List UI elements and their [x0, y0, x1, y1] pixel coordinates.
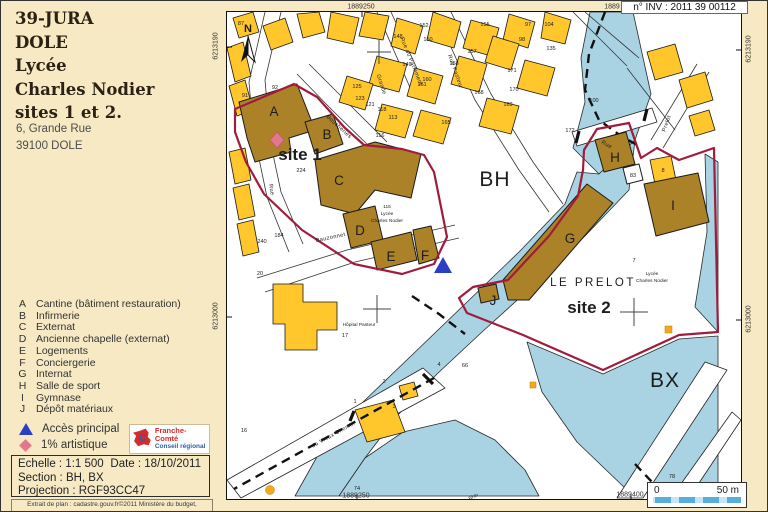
map-label-north: N [244, 23, 252, 35]
grid-coordinate: 1889400 [616, 492, 643, 499]
map-label-bldg: C [334, 173, 344, 188]
map-label-parcel: 168 [474, 90, 483, 96]
map-label-zone: BH [479, 168, 510, 191]
scale-bar: 0 50 m [647, 482, 747, 508]
legend-artistic-row: 1% artistique [19, 437, 119, 453]
legend-access-row: Accès principal [19, 421, 119, 437]
map-label-bldg: A [269, 104, 278, 119]
map-label-parcel: 104 [544, 22, 553, 28]
legend-item: ACantine (bâtiment restauration) [16, 299, 216, 311]
map-label-parcel: 150 [423, 37, 432, 43]
cadastral-plan-page: 39-JURA DOLE Lycée Charles Nodier sites … [0, 0, 768, 512]
map-label-parcel: 7 [632, 258, 635, 264]
date-value: Date : 18/10/2011 [110, 458, 201, 472]
map-label-parcel: 4 [437, 362, 440, 368]
map-label-parcel: 91 [242, 93, 248, 99]
map-label-parcel: 172 [565, 128, 574, 134]
map-label-parcel: 165 [441, 120, 450, 126]
map-label-site: site 1 [278, 145, 321, 164]
projection-value: Projection : RGF93CC47 [18, 485, 203, 499]
map-label-parcel: 3 [392, 404, 395, 410]
address-line: 6, Grande Rue [16, 121, 91, 138]
map-label-small: 115 [383, 204, 391, 210]
access-triangle-icon [19, 423, 33, 435]
map-label-parcel: 16 [241, 428, 247, 434]
map-label-parcel: 135 [546, 46, 555, 52]
map-label-bldg: E [386, 249, 395, 264]
map-label-parcel: 240 [257, 239, 266, 245]
title-line: DOLE [15, 31, 220, 55]
grid-coordinate: 6213000 [746, 305, 753, 332]
plan-title: 39-JURA DOLE Lycée Charles Nodier sites … [15, 7, 220, 125]
artistic-label: 1% artistique [41, 439, 107, 451]
map-label-bldg: J [490, 293, 497, 308]
map-label-bldg: F [421, 248, 429, 263]
grid-coordinate: 6213000 [213, 302, 220, 329]
map-label-parcel: 97 [525, 22, 531, 28]
grid-coordinate: 1889250 [342, 493, 369, 500]
map-label-zone: BX [650, 369, 680, 392]
map-label-prelot: LE PRELOT [550, 277, 636, 289]
map-label-parcel: 113 [389, 115, 398, 121]
map-label-parcel: 169 [503, 102, 512, 108]
map-label-parcel: 152 [419, 23, 428, 29]
symbol-legend: Accès principal 1% artistique [19, 421, 119, 453]
inventory-number: n° INV : 2011 39 00112 [621, 1, 748, 14]
map-label-small: Charles Nodier [636, 278, 668, 284]
map-label-parcel: 171 [507, 68, 516, 74]
map-label-parcel: 184 [274, 233, 283, 239]
grid-coordinate: 6213190 [213, 32, 220, 59]
grid-coordinate: 6213190 [746, 35, 753, 62]
map-label-parcel: 116 [376, 133, 385, 139]
map-label-parcel: 123 [355, 96, 364, 102]
map-label-parcel: 8 [661, 168, 664, 174]
title-line: Charles Nodier [15, 78, 220, 102]
map-label-parcel: 121 [365, 102, 374, 108]
scale-bar-max: 50 m [717, 485, 739, 496]
france-map-icon: C [132, 427, 153, 451]
map-label-parcel: 125 [352, 84, 361, 90]
legend-item: JDépôt matériaux [16, 404, 216, 416]
scale-bar-strip [653, 497, 741, 503]
title-line: 39-JURA [15, 7, 220, 31]
map-label-parcel: 1 [353, 399, 356, 405]
map-label-parcel: 224 [296, 168, 305, 174]
map-label-parcel: 92 [272, 85, 278, 91]
map-label-parcel: 17 [342, 333, 348, 339]
section-value: Section : BH, BX [18, 472, 203, 486]
map-label-small: Charles Nodier [371, 218, 403, 224]
map-label-bldg: I [671, 198, 675, 213]
map-label-small: Lycée [646, 271, 659, 277]
map-label-small: Lycée [381, 211, 394, 217]
site-address: 6, Grande Rue 39100 DOLE [16, 121, 91, 155]
artistic-diamond-icon [19, 439, 32, 452]
grid-coordinate: 1889250 [347, 4, 374, 11]
map-label-small: Hôpital Pasteur [343, 322, 376, 328]
map-info-box: Echelle : 1:1 500 Date : 18/10/2011 Sect… [11, 455, 210, 497]
title-line: Lycée [15, 54, 220, 78]
access-label: Accès principal [42, 423, 119, 435]
map-label-bldg: G [565, 231, 576, 246]
map-label-parcel: 155 [480, 22, 489, 28]
map-label-parcel: 118 [378, 107, 387, 113]
map-label-bldg: B [322, 127, 331, 142]
map-label-parcel: 66 [462, 363, 468, 369]
map-frame: BHBXsite 1site 2LE PRELOTABCDEFGHIJN115L… [226, 11, 742, 500]
map-label-parcel: 100 [589, 98, 598, 104]
map-label-parcel: 83 [630, 173, 636, 179]
building-legend: ACantine (bâtiment restauration)BInfirme… [16, 299, 216, 416]
logo-council-name: Conseil régional [155, 443, 207, 451]
map-label-parcel: 170 [509, 87, 518, 93]
logo-region-name: Franche-Comté [155, 427, 207, 443]
legend-item: HSalle de sport [16, 381, 216, 393]
map-label-parcel: 20 [257, 271, 263, 277]
franche-comte-logo: C Franche-Comté Conseil régional [129, 424, 210, 454]
svg-text:C: C [139, 433, 146, 443]
map-label-parcel: 98 [519, 37, 525, 43]
map-label-bldg: H [610, 150, 620, 165]
map-label-parcel: 87 [238, 21, 244, 27]
map-label-parcel: 2 [382, 379, 385, 385]
map-label-bldg: D [355, 223, 365, 238]
scale-value: Echelle : 1:1 500 [18, 458, 104, 472]
source-footnote: Extrait de plan : cadastre.gouv.fr©2011 … [11, 499, 213, 512]
legend-item: ELogements [16, 346, 216, 358]
map-label-parcel: 74 [354, 486, 360, 492]
grid-coordinate: 1889 [604, 4, 620, 11]
map-label-parcel: 157 [467, 49, 476, 55]
map-label-site: site 2 [567, 298, 610, 317]
scale-bar-min: 0 [654, 485, 660, 496]
map-label-parcel: 78 [669, 474, 675, 480]
address-line: 39100 DOLE [16, 138, 91, 155]
